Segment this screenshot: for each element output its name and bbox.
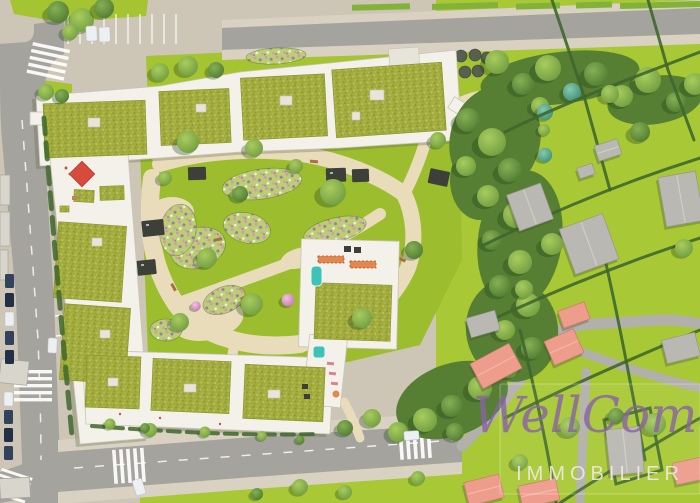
pergola [136, 259, 156, 276]
planter [60, 206, 69, 212]
awning [318, 256, 344, 263]
umbrella [333, 391, 340, 398]
car [86, 26, 98, 41]
green-roof [43, 100, 147, 158]
pergola [352, 169, 369, 183]
aerial-masterplan-rendering: WellCome IMMOBILIER [0, 0, 700, 503]
car [5, 331, 14, 345]
watermark-caps: IMMOBILIER [516, 463, 684, 485]
car [5, 274, 14, 288]
car [5, 350, 14, 364]
watermark: WellCome IMMOBILIER [473, 384, 700, 494]
green-roof [332, 62, 446, 138]
green-roof-patch [100, 186, 124, 201]
green-roof [53, 222, 126, 303]
rooftop-pool [313, 346, 325, 358]
table [72, 196, 77, 200]
pergola [188, 167, 206, 181]
car [4, 392, 13, 406]
car [99, 27, 111, 42]
car [404, 430, 420, 440]
scene-canvas: WellCome IMMOBILIER [0, 0, 700, 503]
green-roof [314, 283, 392, 342]
watermark-script: WellCome [473, 386, 700, 444]
car [48, 338, 58, 353]
green-roof [243, 364, 325, 421]
green-roof [240, 74, 327, 140]
car [4, 446, 13, 460]
rooftop-pool [311, 266, 322, 286]
pergola [141, 219, 165, 237]
car [5, 312, 14, 326]
awning [350, 261, 376, 268]
car [4, 428, 13, 442]
car [4, 410, 13, 424]
car [5, 293, 14, 307]
